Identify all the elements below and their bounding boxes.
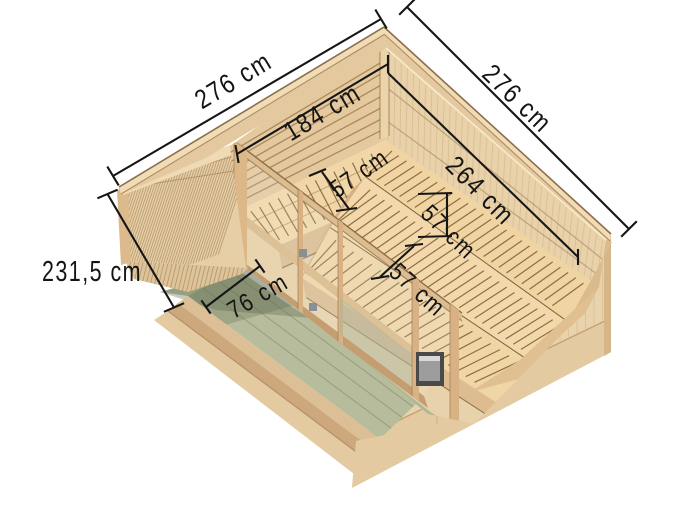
svg-text:231,5 cm: 231,5 cm xyxy=(42,256,142,288)
